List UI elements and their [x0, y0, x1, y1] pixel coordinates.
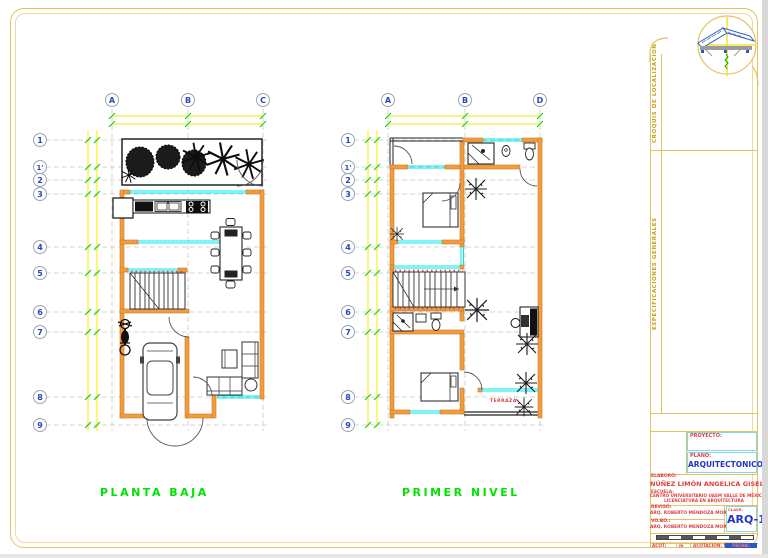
vanity-icon — [416, 314, 426, 322]
grid-bubble: 4 — [33, 240, 47, 254]
grid-bubble: 9 — [341, 418, 355, 432]
side-table-icon — [245, 379, 257, 391]
grid-bubble: 7 — [341, 325, 355, 339]
sink-icon — [155, 202, 181, 212]
grid-bubble: A — [381, 93, 395, 107]
bed-icon — [423, 193, 458, 227]
plano-label: PLANO: — [690, 454, 711, 459]
kitchen-counter — [113, 198, 210, 218]
titleblock-clave-cell: CLAVE: ARQ-1 — [726, 506, 757, 532]
plan-title-planta-baja: PLANTA BAJA — [100, 486, 209, 499]
dining-table — [211, 219, 251, 289]
screen-edge — [762, 0, 768, 558]
grid-bubble: 3 — [341, 187, 355, 201]
garden — [121, 139, 264, 185]
grid-bubble: 8 — [33, 390, 47, 404]
graphic-scale-bar — [656, 535, 754, 540]
bathroom-top — [468, 143, 535, 164]
plan-title-primer-nivel: PRIMER NIVEL — [402, 486, 520, 499]
sidebar-section-divider — [650, 413, 758, 414]
grid-bubble: 9 — [33, 418, 47, 432]
sofa-set — [207, 342, 258, 395]
grid-bubble: 2 — [341, 173, 355, 187]
titleblock-plano-cell: PLANO: ARQUITECTONICO — [687, 452, 757, 473]
plano-value: ARQUITECTONICO — [688, 461, 758, 469]
sidebar-section-divider — [650, 150, 758, 151]
titleblock-line — [690, 543, 691, 548]
grid-bubble: 5 — [33, 266, 47, 280]
drawing-sheet: A B C 1 1' 2 3 4 5 6 7 8 9 — [0, 0, 768, 558]
floorplan-primer-nivel: TERRAZA A B D 1 1' 2 3 4 5 6 7 8 9 — [302, 85, 560, 447]
acot-unit: m — [679, 544, 683, 548]
sidebar-especificaciones-label: ESPECIFICACIONES GENERALES — [652, 217, 658, 330]
clave-value: ARQ-1 — [727, 514, 758, 525]
shower-icon — [468, 143, 494, 164]
vobo-value: ARQ. ROBERTO MENDOZA MORALES — [650, 526, 724, 530]
bed-icon — [421, 373, 458, 401]
reviso-value: ARQ. ROBERTO MENDOZA MORALES — [650, 512, 724, 516]
grid-bubble: 6 — [341, 305, 355, 319]
firm-logo-icon — [640, 2, 760, 110]
fecha-label: FECHA: — [725, 543, 757, 548]
toilet-icon — [524, 143, 535, 160]
grid-bubble: B — [181, 93, 195, 107]
author-label: ELABORÓ: — [651, 475, 677, 480]
titleblock-owner-cell: PROYECTO: — [687, 432, 757, 451]
grid-bubble: D — [533, 93, 547, 107]
author-value: NÚÑEZ LIMÓN ANGELICA GISELL — [650, 481, 758, 488]
grid-bubble: 1 — [33, 133, 47, 147]
owner-label: PROYECTO: — [690, 434, 722, 439]
titleblock-line — [650, 533, 758, 534]
grid-bubble: A — [105, 93, 119, 107]
fridge-icon — [113, 198, 133, 218]
grid-bubble: 1' — [33, 160, 47, 174]
car-icon — [141, 343, 180, 420]
grid-bubble: B — [458, 93, 472, 107]
bathroom-bottom — [393, 313, 441, 331]
grid-bubble: 3 — [33, 187, 47, 201]
grid-bubble: 4 — [341, 240, 355, 254]
stairs — [130, 272, 185, 310]
titleblock-line — [676, 543, 677, 548]
grid-bubble: 2 — [33, 173, 47, 187]
grid-bubble: 1 — [341, 133, 355, 147]
vobo-label: VO.BO.: — [651, 520, 671, 525]
sink-icon — [502, 146, 510, 157]
room-label-terraza: TERRAZA — [490, 398, 517, 404]
reviso-label: REVISÓ: — [651, 506, 672, 511]
screen-edge — [0, 554, 768, 558]
grid-bubble: 7 — [33, 325, 47, 339]
school-line2: LICENCIATURA EN ARQUITECTURA — [650, 499, 758, 503]
clave-label: CLAVE: — [728, 508, 743, 512]
grid-bubble: 8 — [341, 390, 355, 404]
grid-bubble: 6 — [33, 305, 47, 319]
floorplan-planta-baja: A B C 1 1' 2 3 4 5 6 7 8 9 — [28, 85, 280, 447]
grid-bubble: 1' — [341, 160, 355, 174]
desk-computer-icon — [511, 307, 538, 337]
acot-label: ACOT: — [652, 544, 666, 548]
stove-icon — [186, 201, 208, 213]
toilet-icon — [431, 313, 441, 331]
grid-bubble: C — [256, 93, 270, 107]
shower-icon — [393, 313, 413, 331]
stairs — [393, 271, 465, 309]
grid-bubble: 5 — [341, 266, 355, 280]
floorplan-planta-baja-drawing — [28, 85, 280, 447]
